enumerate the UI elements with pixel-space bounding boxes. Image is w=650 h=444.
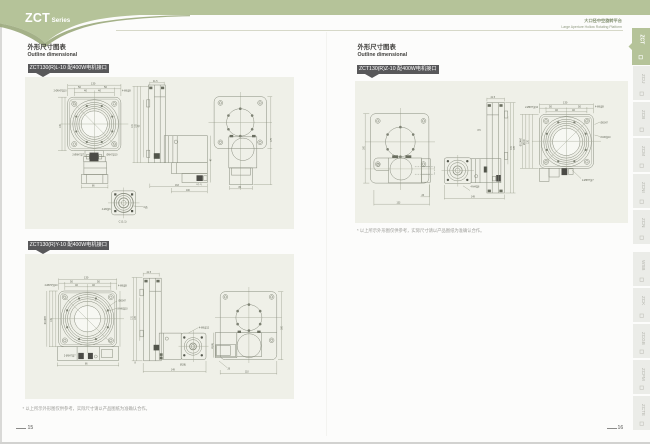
svg-text:2-Ø6H7深10: 2-Ø6H7深10 bbox=[54, 89, 68, 93]
svg-text:C (1:1): C (1:1) bbox=[119, 220, 127, 224]
svg-text:8.5: 8.5 bbox=[478, 130, 482, 132]
svg-text:4-M6深8: 4-M6深8 bbox=[118, 283, 128, 287]
svg-text:Ø114H7: Ø114H7 bbox=[45, 315, 47, 324]
svg-text:50: 50 bbox=[578, 105, 581, 109]
svg-text:2-Ø6H7深10: 2-Ø6H7深10 bbox=[525, 105, 539, 109]
svg-text:40: 40 bbox=[92, 283, 95, 287]
svg-text:Ø82H7: Ø82H7 bbox=[601, 123, 609, 125]
svg-text:40: 40 bbox=[75, 283, 78, 287]
svg-text:41.5: 41.5 bbox=[491, 97, 496, 99]
svg-text:40: 40 bbox=[98, 89, 101, 93]
svg-text:130: 130 bbox=[84, 276, 89, 280]
svg-text:Ø(38): Ø(38) bbox=[180, 365, 186, 367]
svg-text:130: 130 bbox=[563, 101, 568, 105]
svg-text:4-M6深8: 4-M6深8 bbox=[595, 104, 605, 108]
svg-text:105: 105 bbox=[514, 145, 516, 150]
svg-text:50: 50 bbox=[70, 279, 73, 283]
svg-text:Ø82H7: Ø82H7 bbox=[119, 301, 127, 303]
svg-text:50: 50 bbox=[104, 85, 107, 89]
svg-text:Ø(38): Ø(38) bbox=[212, 343, 214, 349]
svg-text:Ø100: Ø100 bbox=[524, 138, 526, 144]
svg-text:Ø114H7: Ø114H7 bbox=[521, 137, 523, 146]
svg-text:26: 26 bbox=[228, 368, 231, 370]
svg-text:130: 130 bbox=[51, 317, 53, 322]
svg-text:2-Ø6H7深7: 2-Ø6H7深7 bbox=[72, 152, 84, 156]
svg-text:50: 50 bbox=[97, 279, 100, 283]
svg-text:2-Ø6H7深10: 2-Ø6H7深10 bbox=[45, 283, 59, 287]
svg-text:130: 130 bbox=[91, 81, 96, 85]
svg-text:131: 131 bbox=[511, 145, 513, 150]
svg-text:47: 47 bbox=[211, 158, 213, 161]
svg-text:8-M6深10: 8-M6深10 bbox=[118, 307, 129, 311]
svg-text:175: 175 bbox=[271, 137, 273, 142]
svg-text:C面: C面 bbox=[144, 205, 149, 209]
svg-text:41.5: 41.5 bbox=[153, 81, 158, 83]
svg-text:C(1:1): C(1:1) bbox=[196, 184, 202, 186]
svg-text:50: 50 bbox=[78, 85, 81, 89]
svg-text:41.5: 41.5 bbox=[147, 272, 152, 274]
svg-text:Ø6H7深10: Ø6H7深10 bbox=[107, 152, 119, 156]
svg-text:2-Ø6H7深7: 2-Ø6H7深7 bbox=[64, 354, 76, 358]
svg-text:86: 86 bbox=[92, 185, 95, 187]
svg-text:4-M6深8: 4-M6深8 bbox=[122, 89, 132, 93]
svg-text:8-M6深10: 8-M6深10 bbox=[601, 135, 612, 139]
svg-text:40: 40 bbox=[84, 89, 87, 93]
svg-text:40: 40 bbox=[572, 108, 575, 112]
svg-text:26: 26 bbox=[422, 195, 425, 197]
svg-text:40: 40 bbox=[555, 108, 558, 112]
svg-text:4-M4深8: 4-M4深8 bbox=[471, 184, 481, 188]
svg-text:4-M4深6: 4-M4深6 bbox=[102, 207, 112, 211]
svg-text:2-Ø6H7深7: 2-Ø6H7深7 bbox=[582, 178, 594, 182]
svg-text:160: 160 bbox=[282, 325, 284, 330]
svg-text:4-M6深12: 4-M6深12 bbox=[199, 326, 210, 330]
svg-text:8: 8 bbox=[135, 363, 137, 365]
svg-text:50: 50 bbox=[549, 105, 552, 109]
